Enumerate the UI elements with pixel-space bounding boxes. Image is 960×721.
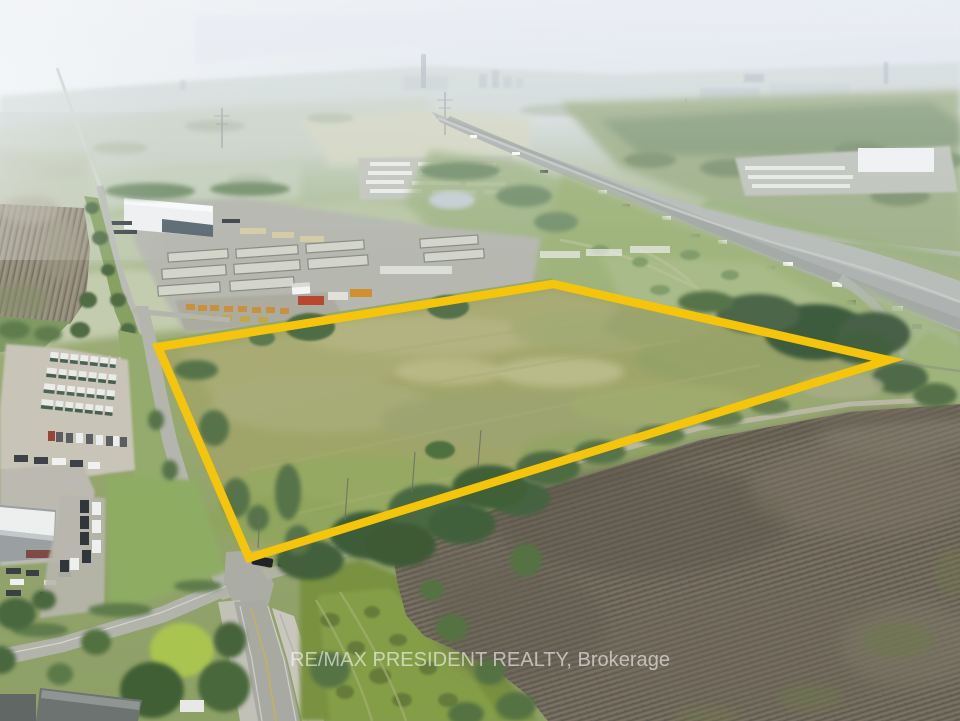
- svg-text:RE/MAX PRESIDENT REALTY, Broke: RE/MAX PRESIDENT REALTY, Brokerage: [290, 649, 670, 671]
